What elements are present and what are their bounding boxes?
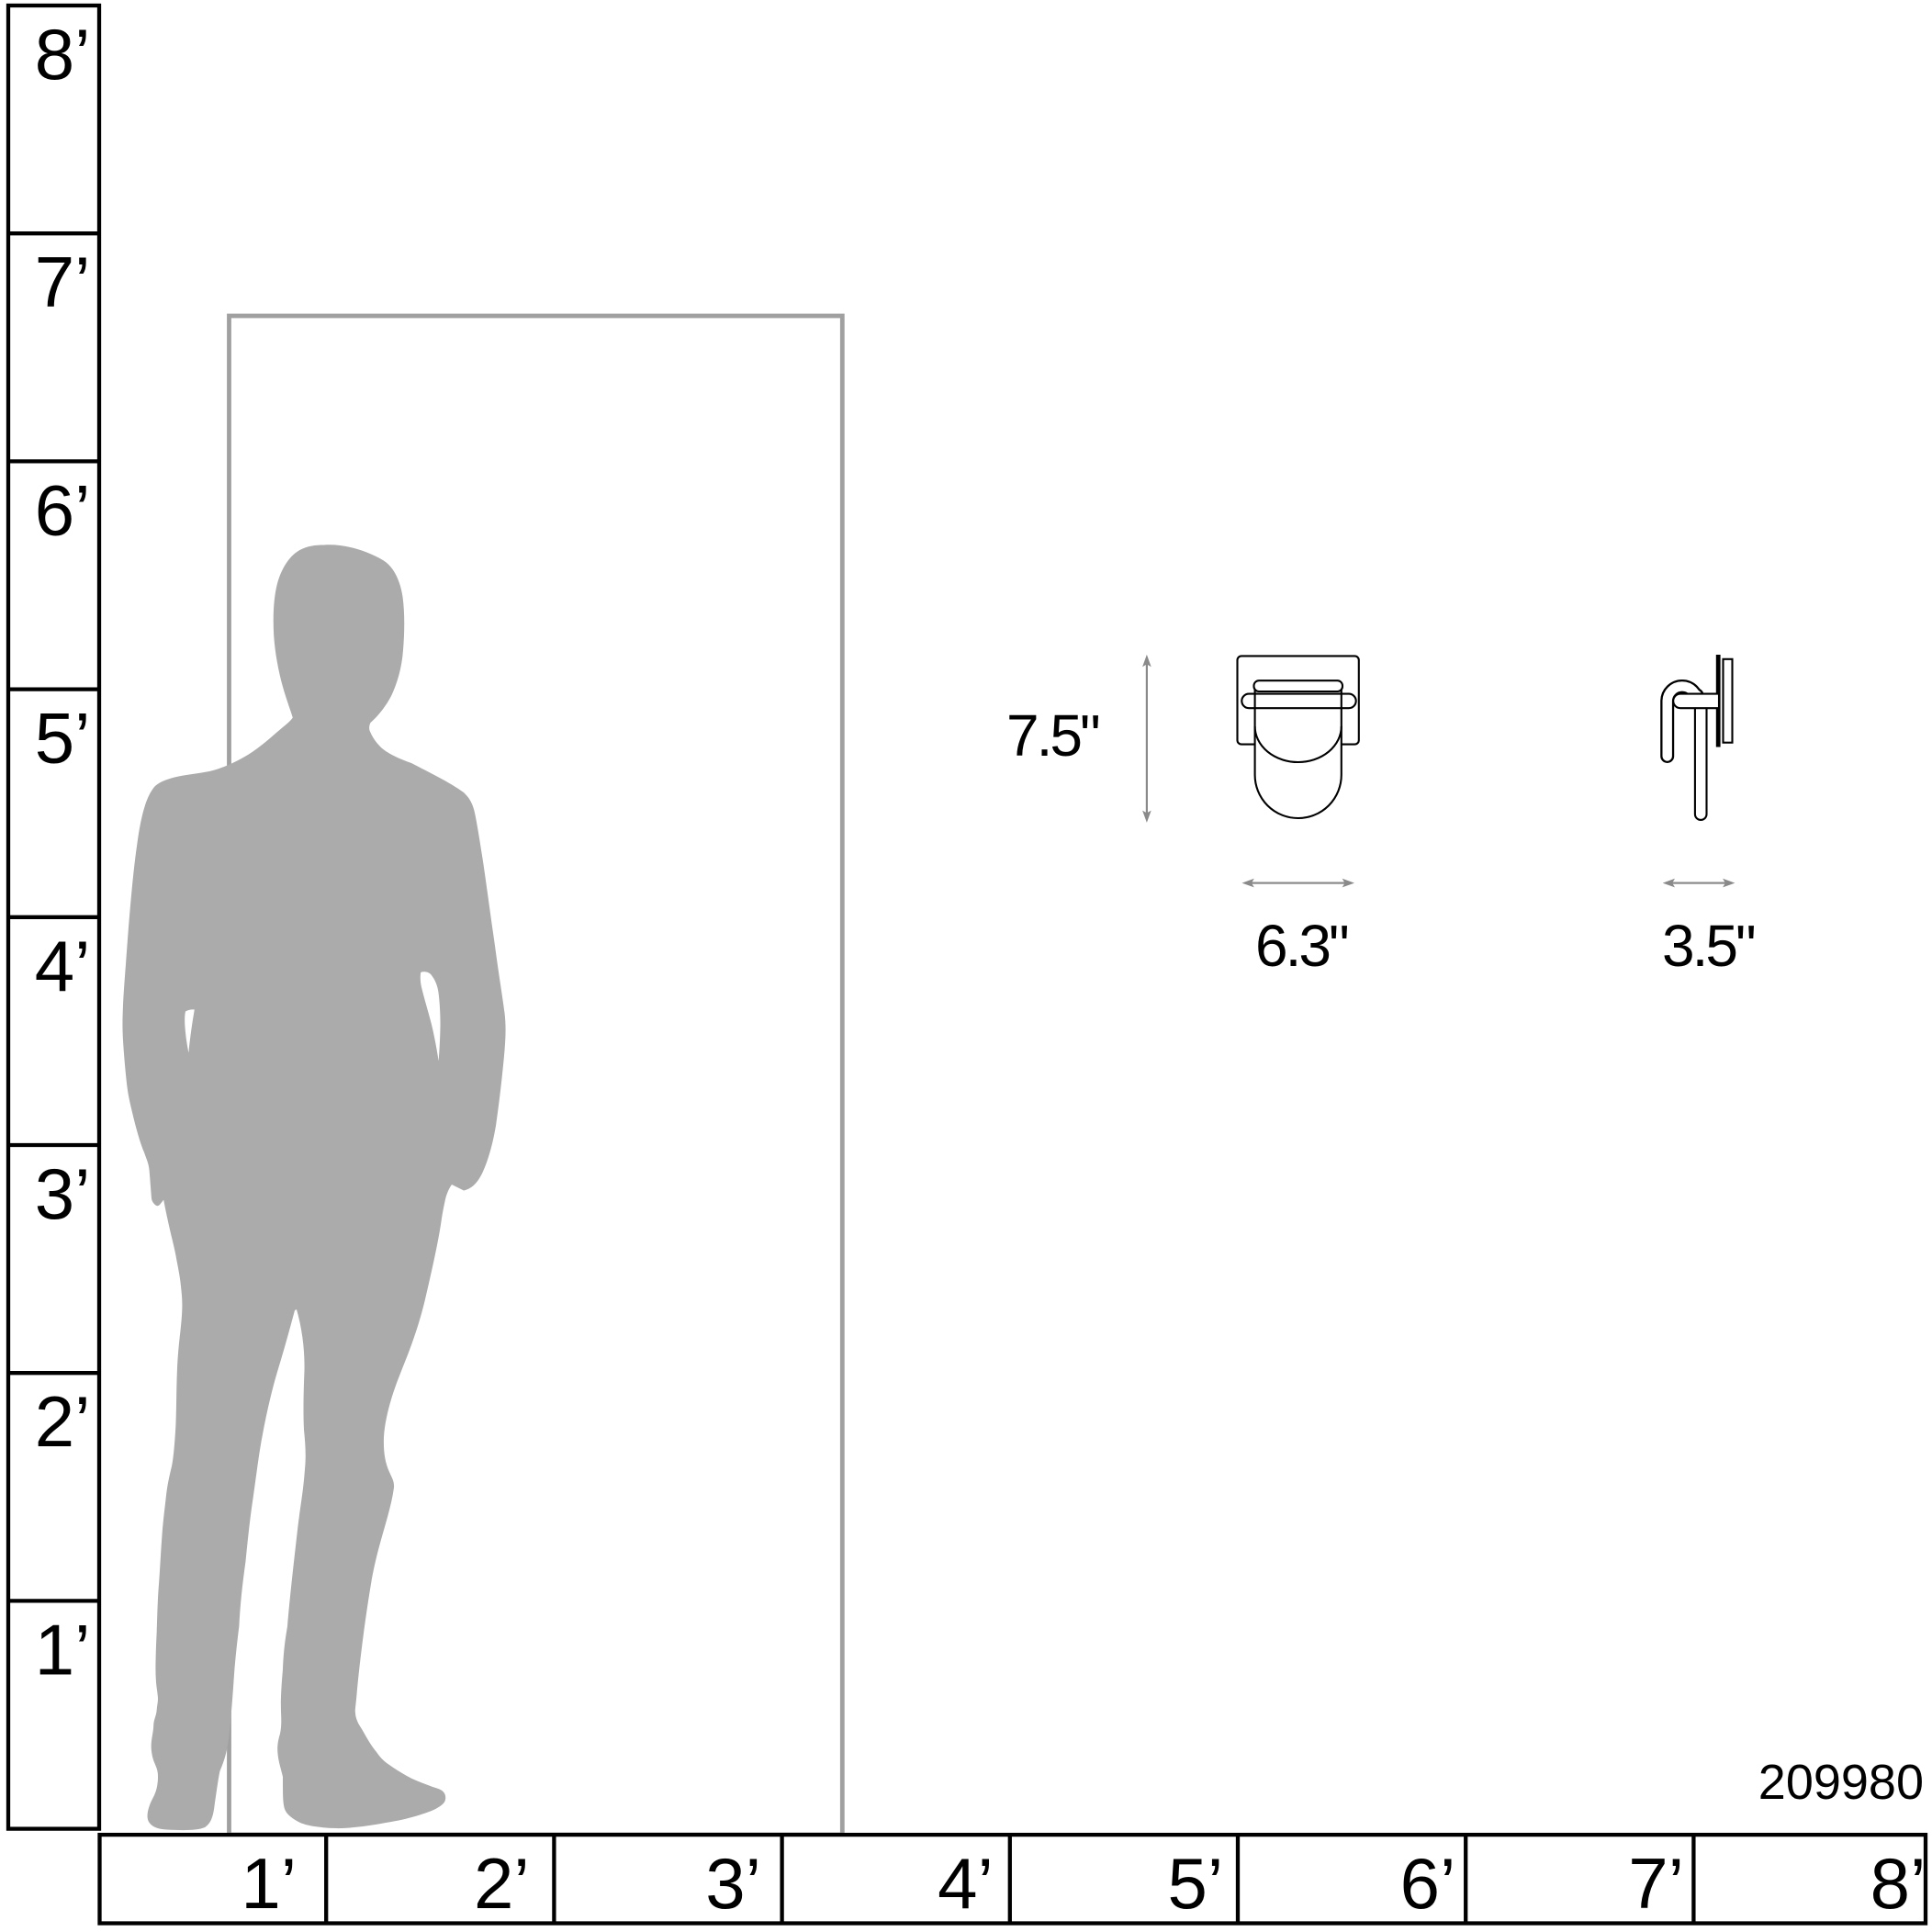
svg-text:5’: 5’: [1167, 1843, 1223, 1924]
svg-text:2’: 2’: [474, 1843, 530, 1924]
svg-text:7.5": 7.5": [1006, 702, 1098, 769]
svg-text:5’: 5’: [35, 698, 91, 779]
svg-text:8’: 8’: [35, 14, 91, 95]
svg-text:8’: 8’: [1870, 1843, 1926, 1924]
svg-text:1’: 1’: [35, 1609, 91, 1690]
svg-text:4’: 4’: [35, 926, 91, 1006]
svg-text:6’: 6’: [35, 469, 91, 550]
svg-text:2’: 2’: [35, 1381, 91, 1462]
svg-text:6’: 6’: [1400, 1843, 1456, 1924]
svg-text:3’: 3’: [705, 1843, 761, 1924]
svg-text:6.3": 6.3": [1255, 913, 1347, 979]
svg-text:4’: 4’: [938, 1843, 994, 1924]
svg-text:3’: 3’: [35, 1153, 91, 1234]
svg-text:7’: 7’: [35, 241, 91, 322]
svg-text:1’: 1’: [241, 1843, 297, 1924]
svg-text:209980: 209980: [1758, 1755, 1924, 1810]
svg-text:7’: 7’: [1628, 1843, 1684, 1924]
svg-text:3.5": 3.5": [1662, 913, 1754, 979]
